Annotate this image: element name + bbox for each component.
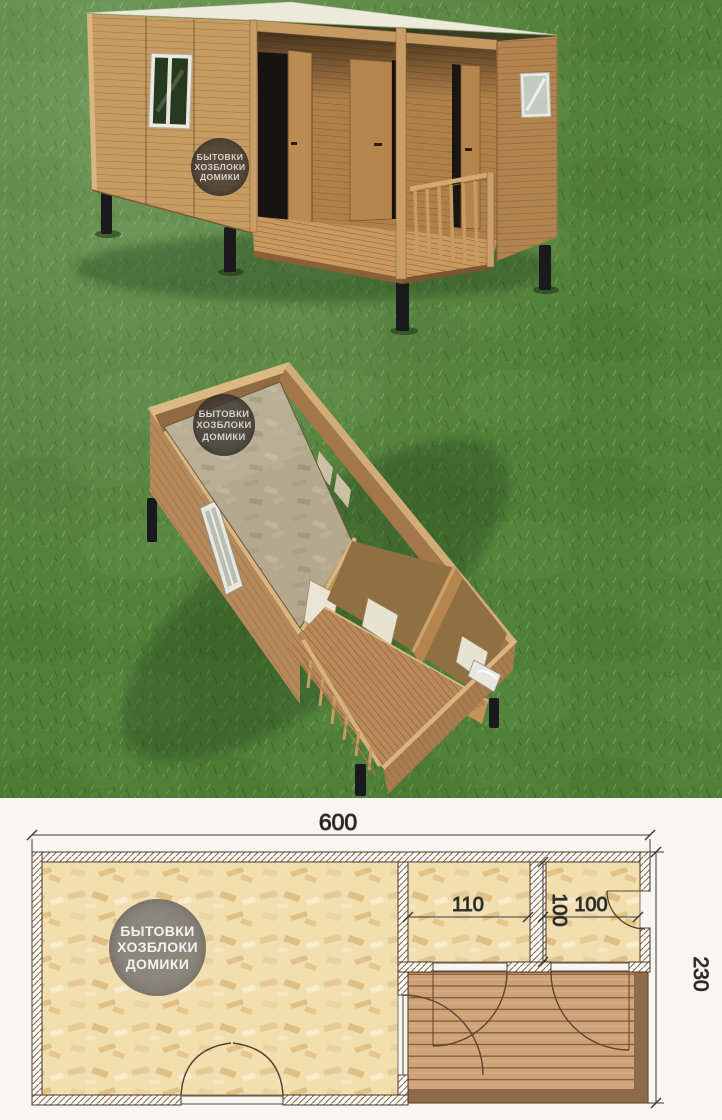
watermark-line: ХОЗБЛОКИ	[196, 419, 251, 430]
watermark-line: ДОМИКИ	[202, 431, 245, 442]
right-wall-window	[520, 72, 551, 117]
watermark-line: БЫТОВКИ	[120, 923, 194, 940]
plan-deck	[408, 972, 648, 1103]
watermark-badge-exterior: БЫТОВКИ ХОЗБЛОКИ ДОМИКИ	[191, 138, 249, 196]
door-leaf-1	[288, 50, 312, 226]
watermark-line: ДОМИКИ	[126, 956, 190, 973]
exterior-render	[75, 2, 559, 335]
watermark-line: ДОМИКИ	[200, 172, 240, 182]
watermark-line: БЫТОВКИ	[197, 152, 244, 162]
door-opening-1	[258, 50, 312, 228]
watermark-line: ХОЗБЛОКИ	[195, 162, 246, 172]
watermark-badge-plan: БЫТОВКИ ХОЗБЛОКИ ДОМИКИ	[109, 899, 206, 996]
dim-label-100-depth: 100	[548, 893, 570, 926]
door-2	[350, 59, 399, 221]
floor-plan: 600 230 110 100	[0, 798, 722, 1120]
watermark-line: ХОЗБЛОКИ	[117, 939, 198, 956]
dim-label-600: 600	[319, 809, 357, 835]
left-wall-window	[149, 53, 193, 128]
poster: 600 230 110 100	[0, 0, 722, 1120]
right-end-wall	[497, 36, 557, 261]
dim-label-230: 230	[689, 956, 712, 991]
renders-scene	[0, 0, 722, 798]
dim-label-110: 110	[452, 894, 484, 916]
main-room-osb	[42, 862, 398, 1095]
dim-label-100-width: 100	[574, 894, 607, 916]
watermark-line: БЫТОВКИ	[199, 408, 250, 419]
watermark-badge-interior: БЫТОВКИ ХОЗБЛОКИ ДОМИКИ	[193, 394, 255, 456]
